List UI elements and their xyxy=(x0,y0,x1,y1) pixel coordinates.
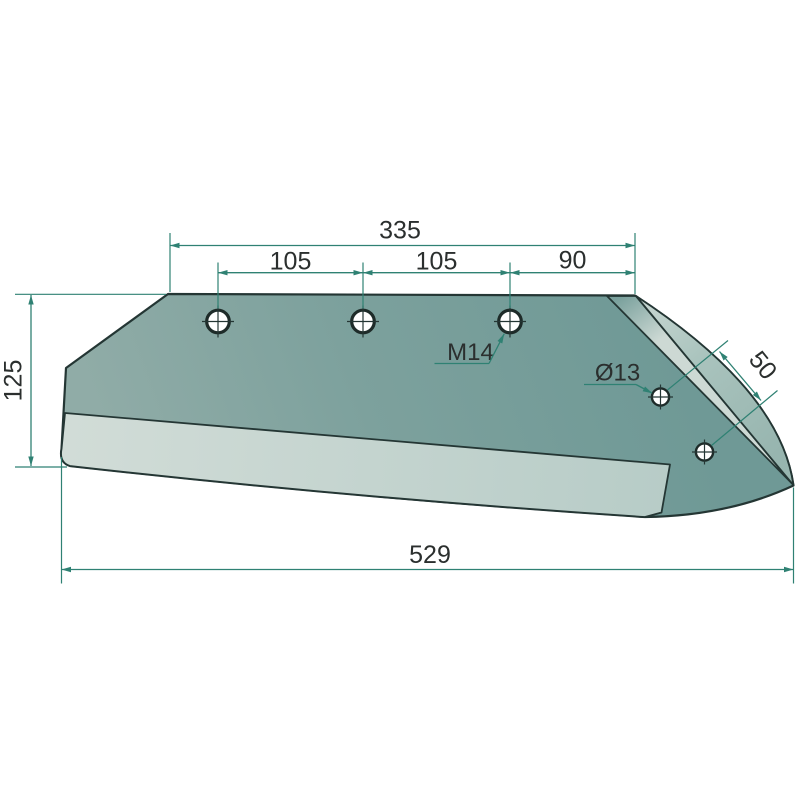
dim-105-left-text: 105 xyxy=(270,248,312,276)
technical-drawing: 335 105 105 90 125 xyxy=(0,0,800,800)
dim-90-text: 90 xyxy=(559,247,587,275)
dim-50-text: 50 xyxy=(743,346,782,385)
drawing-canvas: 335 105 105 90 125 xyxy=(0,0,800,800)
dim-529-text: 529 xyxy=(409,541,451,569)
dim-335-text: 335 xyxy=(379,217,421,245)
dim-105-mid-text: 105 xyxy=(416,248,458,276)
label-dia13-text: Ø13 xyxy=(595,360,640,387)
label-m14-text: M14 xyxy=(447,339,494,366)
dim-125-text: 125 xyxy=(0,360,28,402)
plowshare-body-group xyxy=(61,294,793,517)
